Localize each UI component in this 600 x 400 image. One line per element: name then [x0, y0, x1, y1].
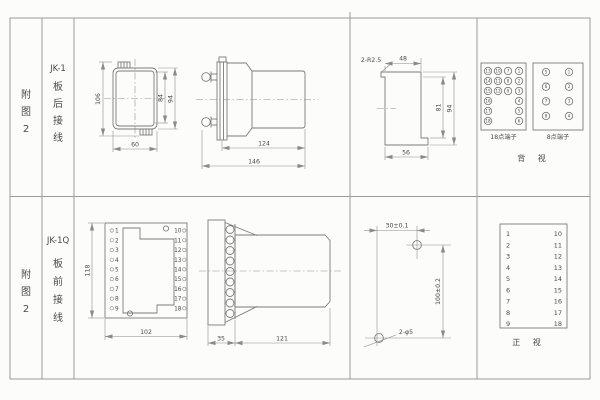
terminal-number: 3	[506, 253, 510, 261]
terminal-number: 3	[115, 248, 119, 254]
dim-hole-spacing-h: 30±0.1	[386, 223, 409, 230]
terminal-number: 5	[506, 275, 510, 283]
terminal-number-table: 1 2 3 4 5 6 7 8 9 10 11 12 13 14 15 16 1…	[500, 224, 567, 328]
terminal-number: 9	[506, 320, 510, 328]
terminal-number: 11	[554, 241, 562, 249]
terminal-number: 15	[554, 286, 562, 294]
row2-header: 附 图 2 JK-1Q 板 前 接 线	[21, 236, 69, 324]
dim-height-inner: 84	[158, 94, 165, 102]
terminal-number: 13	[554, 264, 562, 272]
terminal-number: 10	[554, 230, 562, 238]
terminal-block-8-label: 8点端子	[547, 133, 570, 141]
jk1q-front-view: 1 2 3 4 5 6 7 8 9 10 11 12 13 14 15 16 1…	[85, 223, 188, 340]
mount-char: 线	[53, 311, 63, 324]
terminal-screw-bottom	[202, 117, 217, 128]
appendix-char: 图	[21, 106, 31, 118]
row1-header: 附 图 2 JK-1 板 后 接 线	[21, 64, 66, 144]
mount-char: 接	[53, 114, 63, 127]
terminal-number: 8	[507, 78, 510, 83]
jk1-front-view: 106 84 94 60	[95, 59, 178, 152]
dim-front-width: 102	[140, 329, 152, 336]
dim-height-total: 106	[95, 93, 102, 105]
row1-view-label: 背 视	[517, 153, 551, 163]
terminal-number: 9	[115, 306, 119, 312]
terminal-number: 11	[174, 238, 182, 244]
mounting-hole	[127, 311, 132, 316]
jk1q-drilling-plan: 30±0.1 100±0.2 2-φ5	[364, 223, 451, 348]
appendix-char: 附	[21, 268, 31, 281]
model-label: JK-1	[49, 64, 66, 74]
mount-char: 前	[53, 275, 63, 288]
terminal-number: 4	[115, 258, 119, 264]
terminal-number: 9	[507, 88, 510, 93]
terminal-number: 1	[506, 230, 510, 238]
mount-char: 板	[53, 257, 63, 270]
terminal-number: 1	[518, 68, 521, 73]
terminal-number: 10	[495, 68, 501, 73]
terminal-number: 6	[518, 118, 521, 123]
terminal-number: 17	[174, 297, 182, 303]
terminal-number: 6	[545, 84, 548, 89]
terminal-number: 8	[115, 297, 119, 303]
dim-height-outer: 94	[168, 95, 175, 103]
terminal-number: 13	[485, 68, 491, 73]
terminal-number: 8	[545, 113, 548, 118]
terminal-number: 4	[506, 264, 510, 272]
terminal-number: 14	[554, 275, 562, 283]
dim-cutout-outer-height: 94	[447, 105, 454, 113]
terminal-number: 4	[568, 113, 571, 118]
dim-width-bottom: 60	[131, 142, 139, 149]
terminal-number: 3	[518, 88, 521, 93]
terminal-number: 4	[518, 98, 521, 103]
dim-cutout-top-width: 48	[399, 56, 407, 63]
mounting-hole	[163, 226, 168, 231]
jk1q-side-view: 35 121	[199, 220, 341, 346]
terminal-screw-top	[202, 72, 217, 83]
terminal-number: 17	[485, 108, 491, 113]
terminal-number: 2	[115, 238, 119, 244]
terminal-block-8: 5 6 7 8 1 2 3 4 8点端子	[533, 63, 583, 141]
terminal-number: 5	[545, 69, 548, 74]
terminal-number: 10	[174, 229, 182, 235]
terminal-number: 15	[174, 277, 182, 283]
appendix-char: 附	[21, 88, 31, 101]
relay-dimension-sheet: 附 图 2 JK-1 板 后 接 线 106 84 94	[0, 0, 600, 400]
terminal-number: 7	[115, 287, 119, 293]
model-label: JK-1Q	[46, 236, 70, 246]
terminal-number: 1	[568, 69, 571, 74]
terminal-number: 7	[545, 99, 548, 104]
dim-total-depth: 146	[248, 159, 260, 166]
terminal-number: 12	[174, 248, 182, 254]
appendix-char: 图	[21, 286, 31, 298]
terminal-number: 15	[485, 88, 491, 93]
terminal-number: 14	[174, 268, 182, 274]
mount-char: 线	[53, 131, 63, 144]
terminal-number: 13	[174, 258, 182, 264]
terminal-number: 16	[174, 287, 182, 293]
table-grid	[10, 12, 590, 379]
row2-view-label: 正 视	[512, 337, 546, 347]
terminal-number: 2	[506, 241, 510, 249]
terminal-number: 6	[506, 286, 510, 294]
terminal-number: 5	[518, 108, 521, 113]
dim-hole-spacing-v: 100±0.2	[435, 278, 442, 305]
terminal-number: 18	[174, 306, 182, 312]
terminal-number: 14	[485, 78, 491, 83]
terminal-block-18-label: 18点端子	[490, 133, 516, 141]
technical-drawing: 附 图 2 JK-1 板 后 接 线 106 84 94	[0, 0, 600, 400]
terminal-number: 5	[115, 268, 119, 274]
appendix-char: 2	[23, 304, 29, 315]
cutout-radius-label: 2-R2.5	[361, 57, 381, 64]
terminal-number: 16	[554, 298, 562, 306]
terminal-number: 18	[554, 320, 562, 328]
terminal-number: 12	[495, 88, 501, 93]
mount-char: 后	[53, 98, 63, 110]
terminal-number: 7	[506, 298, 510, 306]
terminal-number: 7	[507, 68, 510, 73]
terminal-number: 6	[115, 277, 119, 283]
terminal-tab-top	[118, 62, 130, 68]
dim-body-depth: 124	[258, 141, 270, 148]
terminal-number: 17	[554, 309, 562, 317]
terminal-number: 1	[115, 229, 119, 235]
jk1-side-view: 124 146	[196, 57, 318, 169]
terminal-number: 16	[485, 98, 491, 103]
dim-front-depth: 35	[217, 336, 225, 343]
appendix-char: 2	[23, 124, 29, 135]
terminal-tab-bottom	[140, 129, 152, 135]
terminal-number: 2	[518, 78, 521, 83]
terminal-number: 11	[495, 78, 501, 83]
mount-char: 接	[53, 293, 63, 306]
hole-diameter-label: 2-φ5	[399, 329, 413, 336]
terminal-number: 3	[568, 99, 571, 104]
terminal-number: 8	[506, 309, 510, 317]
jk1-panel-cutout: 2-R2.5 48 81 94 56	[361, 56, 457, 161]
terminal-number: 12	[554, 253, 562, 261]
terminal-number: 18	[485, 118, 491, 123]
terminal-block-18: 13 14 15 16 17 18 10 11 12 7 8 9 1 2 3 4…	[481, 63, 526, 141]
dim-body-depth: 121	[276, 336, 288, 343]
dim-cutout-bottom-width: 56	[402, 150, 410, 157]
terminal-number: 2	[568, 84, 571, 89]
dim-cutout-inner-height: 81	[436, 104, 443, 112]
mount-char: 板	[53, 80, 63, 93]
dim-front-height: 118	[85, 265, 92, 277]
